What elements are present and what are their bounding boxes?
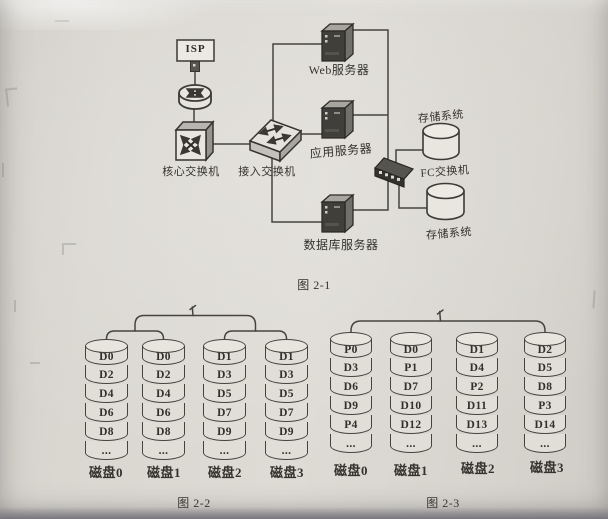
- disk-top-ellipse: [265, 339, 308, 353]
- disk-block: ...: [142, 441, 185, 460]
- disk-block: D6: [85, 403, 128, 422]
- disk-block: D11: [456, 396, 498, 415]
- fig2-disk-0-label: 磁盘0: [89, 466, 123, 480]
- isp-label: ISP: [177, 43, 214, 55]
- disk-block: ...: [330, 434, 372, 453]
- disk-top-ellipse: [330, 332, 372, 346]
- disk-block: D10: [390, 396, 432, 415]
- disk-block: P4: [330, 415, 372, 434]
- raid10-bracket: [107, 306, 287, 344]
- disk-block: ...: [390, 434, 432, 453]
- fig3-disk-1-label: 磁盘1: [394, 464, 428, 478]
- raid5-bracket: [351, 310, 545, 340]
- disk-block: D14: [524, 415, 566, 434]
- disk-block: D7: [203, 403, 246, 422]
- scanned-document-page: ISP 核心交换机 接入交换机 Web服务器 应用服务器 数据库服务器 FC交换…: [0, 0, 608, 519]
- disk-block: D8: [524, 377, 566, 396]
- disk-block: D3: [330, 358, 372, 377]
- db-server-label: 数据库服务器: [303, 239, 378, 252]
- disk-block: D2: [85, 365, 128, 384]
- disk-block: D8: [85, 422, 128, 441]
- figure3-caption: 图 2-3: [426, 497, 460, 510]
- uplink-connector-icon: [191, 62, 200, 72]
- disk-block: D12: [390, 415, 432, 434]
- disk-block: D4: [85, 384, 128, 403]
- storage-cylinder-bottom-icon: [427, 184, 464, 220]
- disk-block: D5: [265, 384, 308, 403]
- disk-block: D2: [142, 365, 185, 384]
- disk-block: P3: [524, 396, 566, 415]
- disk-top-ellipse: [524, 332, 566, 346]
- disk-top-ellipse: [390, 332, 432, 346]
- disk-block: ...: [203, 441, 246, 460]
- disk-block: D5: [203, 384, 246, 403]
- fig2-disk-1-label: 磁盘1: [147, 466, 181, 480]
- fc-switch-icon: [375, 158, 413, 187]
- disk-block: D7: [265, 403, 308, 422]
- fig3-disk-0-label: 磁盘0: [334, 464, 368, 478]
- web-server-icon: [322, 24, 353, 61]
- disk-block: D5: [524, 358, 566, 377]
- access-switch-icon: [250, 120, 301, 161]
- disk-block: D4: [456, 358, 498, 377]
- disk-block: D4: [142, 384, 185, 403]
- disk-block: ...: [265, 441, 308, 460]
- storage-cylinder-top-icon: [423, 124, 459, 160]
- fig3-disk-3-label: 磁盘3: [530, 461, 564, 475]
- disk-block: ...: [456, 434, 498, 453]
- access-switch-label: 接入交换机: [238, 166, 296, 178]
- disk-block: D6: [142, 403, 185, 422]
- app-server-icon: [322, 101, 353, 138]
- disk-block: D9: [330, 396, 372, 415]
- db-server-icon: [322, 195, 353, 232]
- disk-top-ellipse: [85, 339, 128, 353]
- disk-top-ellipse: [142, 339, 185, 353]
- disk-block: D8: [142, 422, 185, 441]
- fig2-disk-2-label: 磁盘2: [208, 466, 242, 480]
- disk-block: D3: [265, 365, 308, 384]
- core-switch-label: 核心交换机: [162, 166, 220, 178]
- connection-lines: [194, 30, 428, 222]
- disk-top-ellipse: [456, 332, 498, 346]
- disk-block: P1: [390, 358, 432, 377]
- disk-block: ...: [85, 441, 128, 460]
- disk-block: D9: [265, 422, 308, 441]
- disk-block: D9: [203, 422, 246, 441]
- disk-block: D3: [203, 365, 246, 384]
- figure2-caption: 图 2-2: [177, 497, 211, 510]
- disk-block: P2: [456, 377, 498, 396]
- router-icon: [179, 85, 211, 109]
- disk-top-ellipse: [203, 339, 246, 353]
- web-server-label: Web服务器: [309, 64, 370, 77]
- disk-block: D7: [390, 377, 432, 396]
- disk-block: D6: [330, 377, 372, 396]
- fig3-disk-2-label: 磁盘2: [461, 462, 495, 476]
- figure1-caption: 图 2-1: [297, 279, 331, 292]
- disk-block: D13: [456, 415, 498, 434]
- disk-block: ...: [524, 434, 566, 453]
- fig2-disk-3-label: 磁盘3: [270, 466, 304, 480]
- core-switch-icon: [176, 122, 213, 160]
